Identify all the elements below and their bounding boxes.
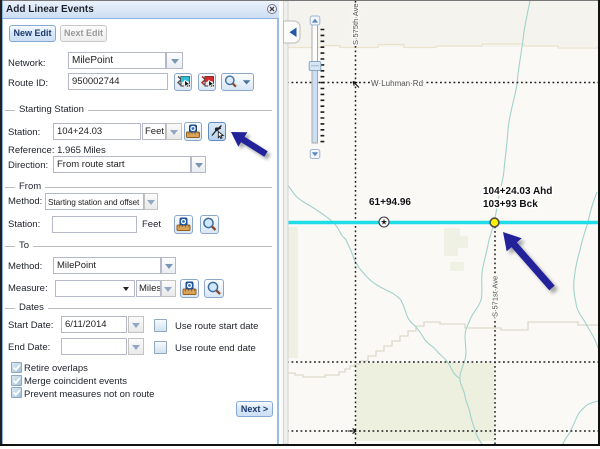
svg-text:S·575th·Ave: S·575th·Ave xyxy=(351,3,360,45)
svg-text:61+94.96: 61+94.96 xyxy=(369,197,411,208)
svg-text:103+93 Bck: 103+93 Bck xyxy=(483,199,538,210)
svg-text:104+24.03 Ahd: 104+24.03 Ahd xyxy=(483,186,552,197)
svg-text:S·571st·Ave: S·571st·Ave xyxy=(491,276,500,317)
svg-text:W·Luhman·Rd: W·Luhman·Rd xyxy=(371,79,423,88)
